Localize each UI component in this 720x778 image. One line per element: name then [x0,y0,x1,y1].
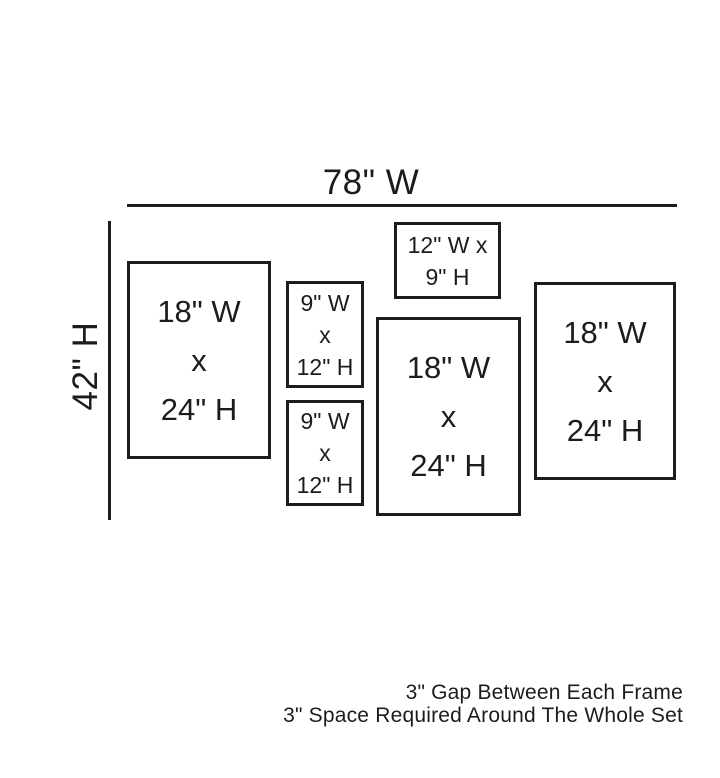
frame-12x9: 12" W x 9" H [394,222,501,299]
frame-size-text: 9" W [300,287,349,319]
frame-size-text: x [597,357,613,406]
frame-size-text: 12" H [297,351,354,383]
frame-size-text: 24" H [161,385,238,434]
total-width-label: 78" W [271,163,471,203]
frame-18x24-center: 18" W x 24" H [376,317,521,516]
total-height-label: 42" H [66,256,106,476]
frame-size-text: 18" W [157,287,240,336]
frame-size-text: x [319,437,331,469]
frame-18x24-left: 18" W x 24" H [127,261,271,459]
frame-size-text: x [441,392,457,441]
frame-size-text: 18" W [407,343,490,392]
gallery-wall-diagram: 78" W 42" H 18" W x 24" H 9" W x 12" H 9… [0,0,720,778]
gap-note: 3" Gap Between Each Frame [283,681,683,704]
width-dimension-line [127,204,677,207]
frame-size-text: 9" W [300,405,349,437]
frame-size-text: x [191,336,207,385]
frame-size-text: 12" W x [408,229,488,261]
clearance-note: 3" Space Required Around The Whole Set [283,704,683,727]
frame-9x12-lower: 9" W x 12" H [286,400,364,506]
layout-notes: 3" Gap Between Each Frame 3" Space Requi… [283,681,683,727]
frame-9x12-upper: 9" W x 12" H [286,281,364,388]
frame-size-text: 24" H [567,406,644,455]
frame-18x24-right: 18" W x 24" H [534,282,676,480]
frame-size-text: x [319,319,331,351]
frame-size-text: 9" H [426,261,470,293]
height-dimension-line [108,221,111,520]
frame-size-text: 12" H [297,469,354,501]
frame-size-text: 24" H [410,441,487,490]
frame-size-text: 18" W [563,308,646,357]
